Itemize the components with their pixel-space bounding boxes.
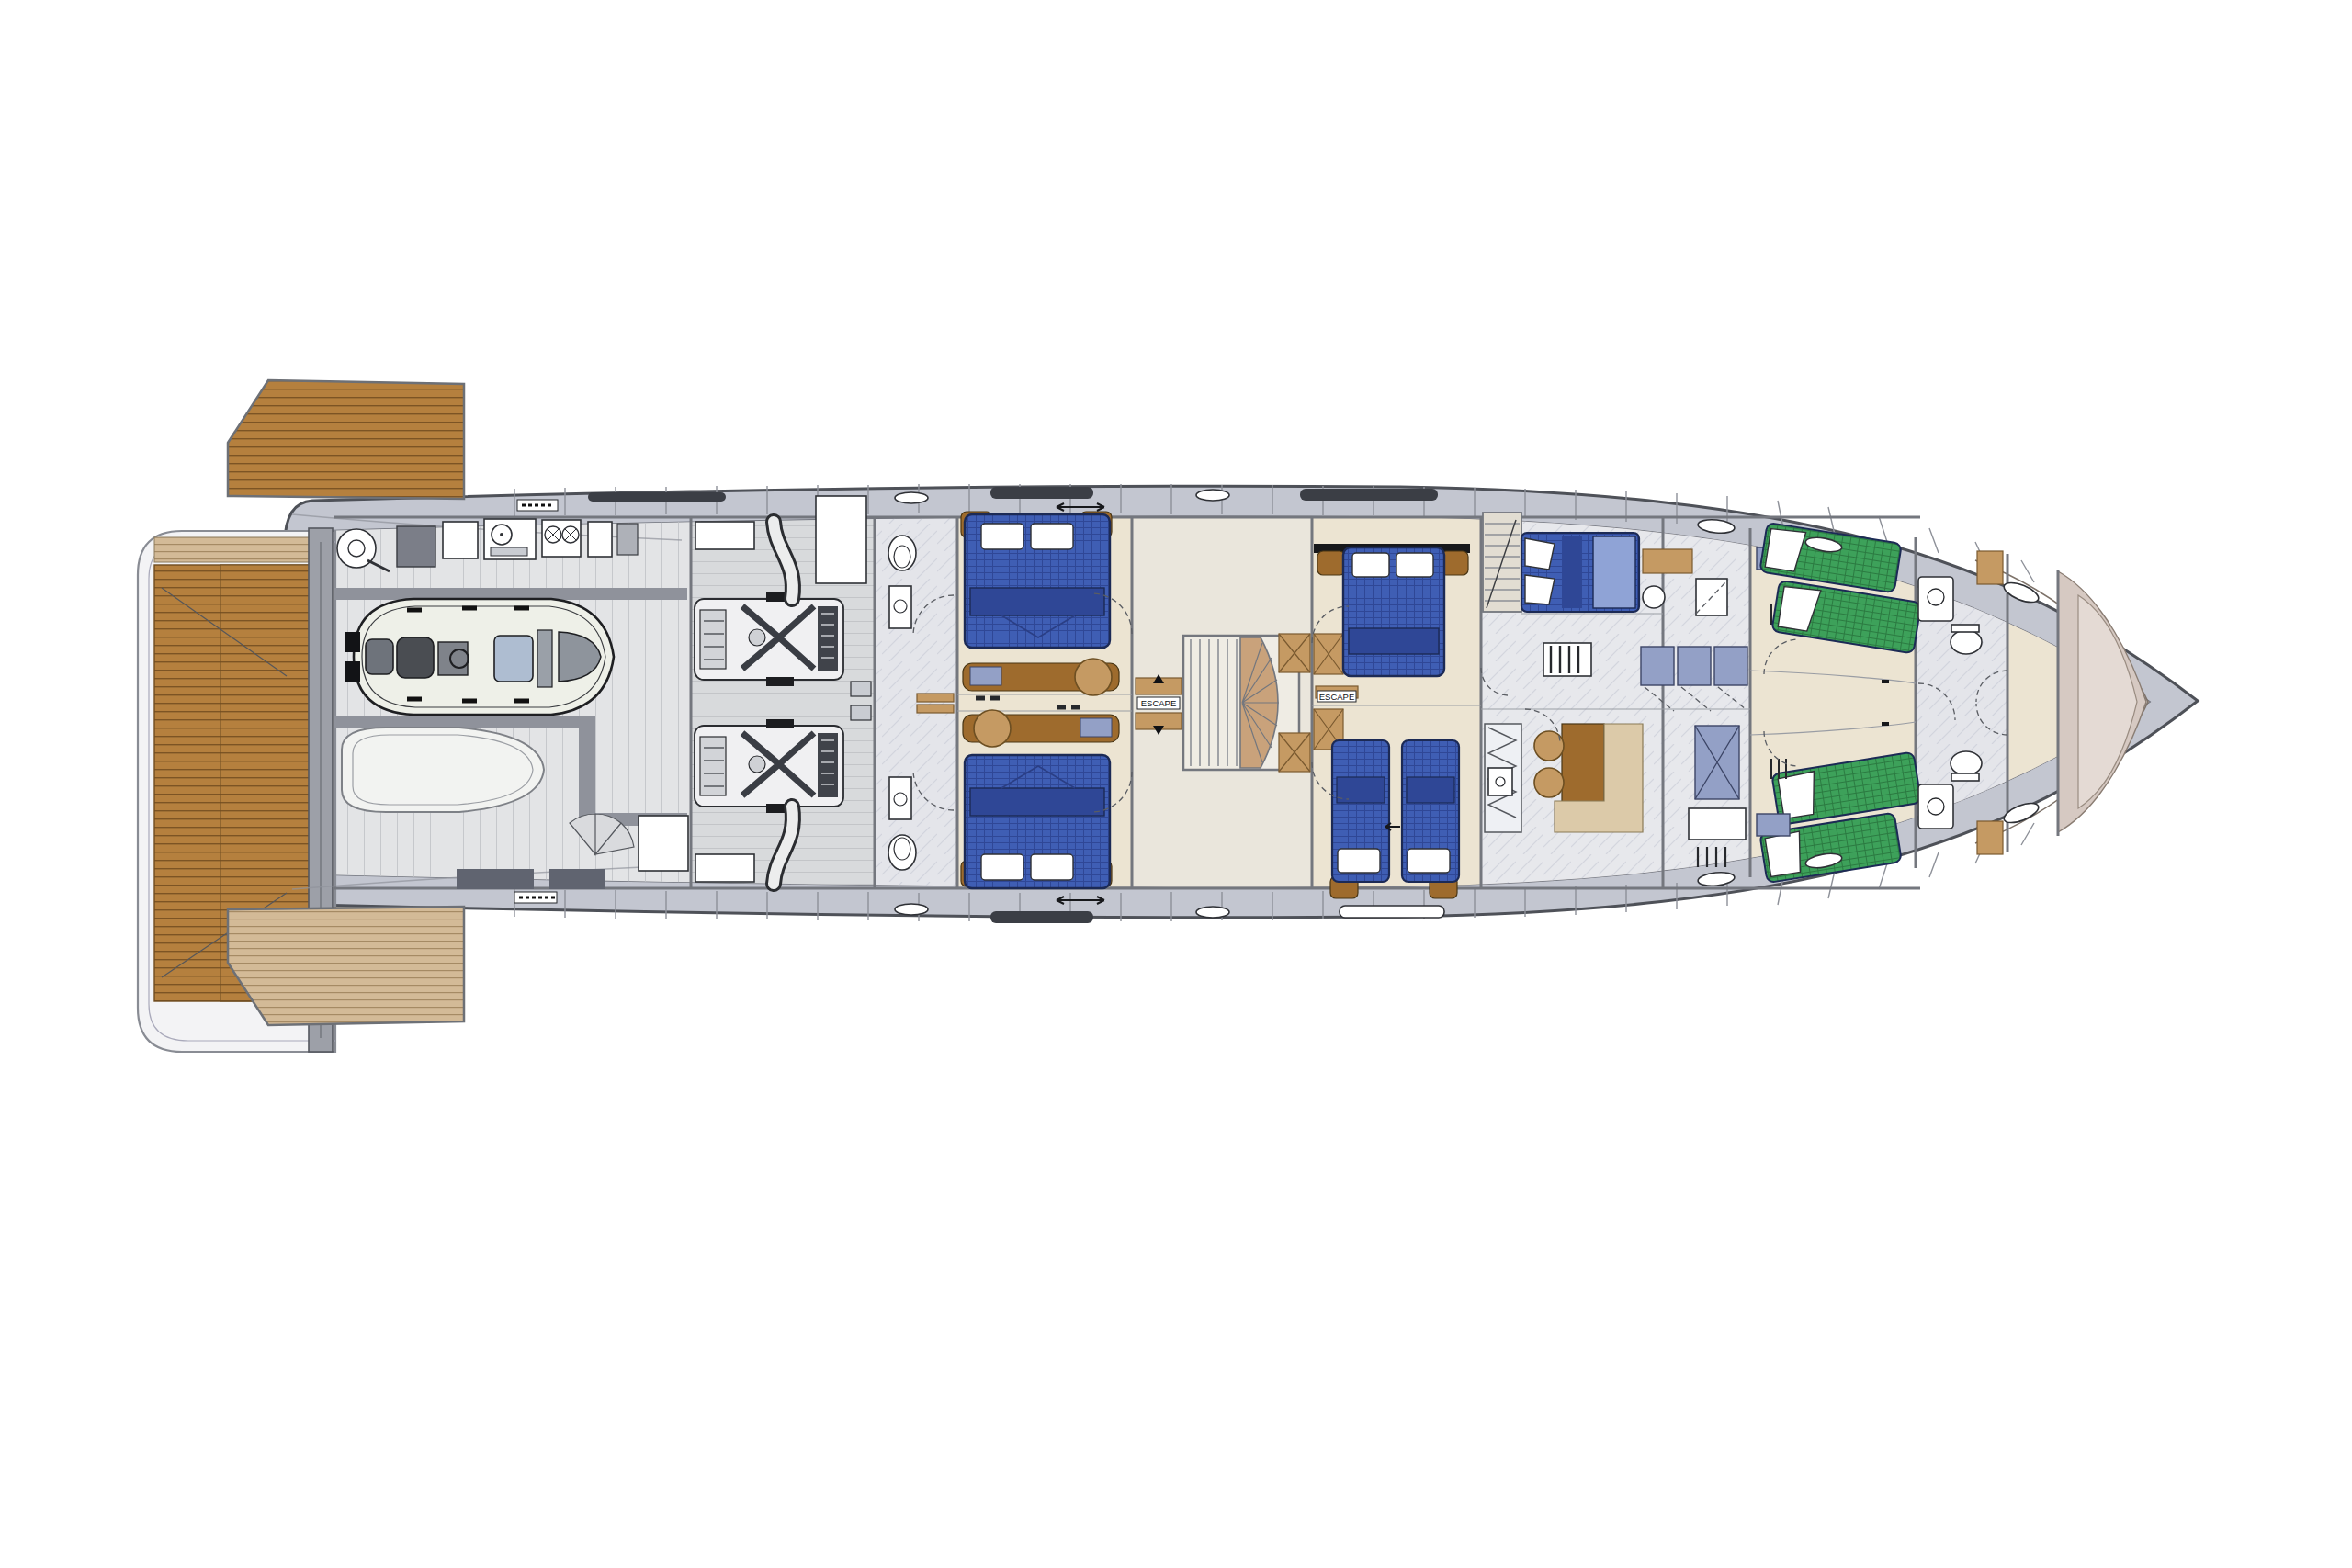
pillow-2a	[981, 854, 1023, 880]
utility-box	[588, 522, 612, 557]
duvet-band-1	[970, 588, 1104, 615]
sofa-cushion-2	[1080, 718, 1112, 737]
tender-engine-port	[345, 632, 360, 652]
stern-locker-stbd	[549, 869, 605, 889]
heads-shelf-2	[917, 705, 954, 713]
workbench-aft	[695, 522, 754, 549]
crew-pillow-b	[1525, 575, 1555, 604]
pillow-4a	[1338, 849, 1380, 873]
green-pillow-2a	[1765, 831, 1805, 876]
escape-label-2: ESCAPE	[1319, 692, 1355, 702]
hull-window-bottom-1	[990, 911, 1093, 923]
washer-2	[1678, 647, 1711, 685]
toilet-aft-port	[888, 536, 916, 570]
tender-console	[438, 642, 468, 675]
washer-1	[1641, 647, 1674, 685]
pillow-4b	[1408, 849, 1450, 873]
side-table-2	[974, 710, 1011, 747]
mess-stool-2	[1534, 768, 1564, 797]
teak-strip-upper	[154, 537, 311, 562]
crew-cabinet	[1643, 549, 1692, 573]
crew-basin	[1643, 586, 1665, 608]
engine-starboard	[695, 719, 843, 813]
duvet-band-3	[1349, 628, 1439, 654]
crew-desk-bottom	[1757, 814, 1790, 836]
workbench-top	[816, 496, 866, 583]
pillow-1a	[981, 524, 1023, 549]
garage-console	[397, 526, 435, 567]
mess-counter	[1689, 808, 1746, 840]
pillow-2b	[1031, 854, 1073, 880]
pillow-3b	[1396, 553, 1433, 577]
pillow-3a	[1352, 553, 1389, 577]
vanity-aft-port	[889, 586, 911, 628]
fwd-toilet-stbd	[1951, 751, 1982, 775]
duvet-band-4b	[1407, 777, 1454, 803]
er-console-2	[851, 705, 871, 720]
sofa-cushion-1	[970, 667, 1001, 685]
hull-window-top-aft	[588, 492, 726, 502]
side-table-1	[1075, 659, 1112, 695]
tender-windshield	[494, 636, 533, 682]
stern-locker-port	[457, 869, 534, 889]
tender-engine-stbd	[345, 661, 360, 682]
washer-3	[1714, 647, 1747, 685]
mess-sink	[1488, 768, 1512, 795]
utility-box-2	[617, 524, 638, 555]
aft-heads-marble	[875, 511, 957, 897]
tender-boat	[345, 599, 614, 715]
garage-bay-wall-bottom	[334, 716, 595, 728]
hull-window-top-2	[1300, 489, 1438, 501]
hull-window-top-1	[990, 487, 1093, 499]
crew-upper-bunk	[1593, 536, 1635, 608]
stowed-tender-outline	[342, 728, 544, 812]
mess-table	[1562, 724, 1604, 803]
fwd-heads-cabinet-1	[1977, 551, 2003, 584]
fwd-heads-cabinet-2	[1977, 821, 2003, 854]
engine-port	[695, 592, 843, 686]
fwd-vanity-port	[1918, 577, 1953, 621]
duvet-band-2	[970, 788, 1104, 816]
fwd-toilet-port	[1951, 630, 1982, 654]
pillow-1b	[1031, 524, 1073, 549]
fwd-vanity-stbd	[1918, 784, 1953, 829]
crew-pillow-a	[1525, 538, 1555, 570]
panel-slot	[491, 547, 527, 556]
bedside-3a	[1317, 551, 1345, 575]
yacht-lower-deck-plan: ESCAPE ESCAPE	[0, 0, 2352, 1568]
duvet-band-4a	[1337, 777, 1385, 803]
deck-plan-svg: ESCAPE ESCAPE	[0, 0, 2352, 1568]
hull-window-bottom-white	[1340, 906, 1444, 918]
fwd-cistern-port	[1951, 625, 1979, 632]
tender-thwart	[537, 630, 552, 687]
fwd-cistern-stbd	[1951, 773, 1979, 781]
toilet-aft-stbd	[888, 835, 916, 870]
terrace-starboard	[228, 907, 464, 1025]
tender-engine-cover	[366, 639, 393, 674]
heads-shelf-1	[917, 694, 954, 702]
crew-bunk-band	[1562, 536, 1582, 608]
terrace-port	[228, 380, 464, 499]
garage-bench-table	[639, 816, 688, 871]
forepeak-inner	[2078, 595, 2137, 808]
garage-table	[443, 522, 478, 558]
garage-step-wall	[579, 716, 595, 819]
escape-label-1: ESCAPE	[1141, 698, 1177, 708]
er-console-1	[851, 682, 871, 696]
gauge-needle	[500, 533, 503, 536]
workbench-aft-lower	[695, 854, 754, 882]
tender-seat	[397, 637, 434, 678]
vanity-aft-stbd	[889, 777, 911, 819]
